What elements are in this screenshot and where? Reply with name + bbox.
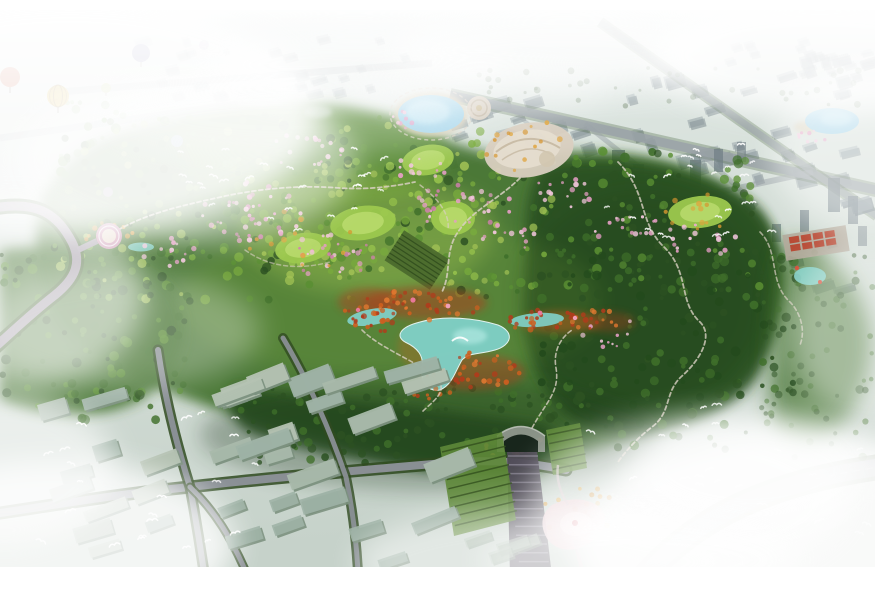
aerial-park-rendering: Aerial bird's-eye architectural renderin…	[0, 0, 875, 614]
scene-root	[0, 0, 875, 614]
scene-layers	[0, 0, 875, 614]
screenshot-stage: Aerial bird's-eye architectural renderin…	[0, 0, 875, 614]
roundabout-pond	[128, 243, 154, 252]
waterside-pavilion	[410, 297, 415, 302]
